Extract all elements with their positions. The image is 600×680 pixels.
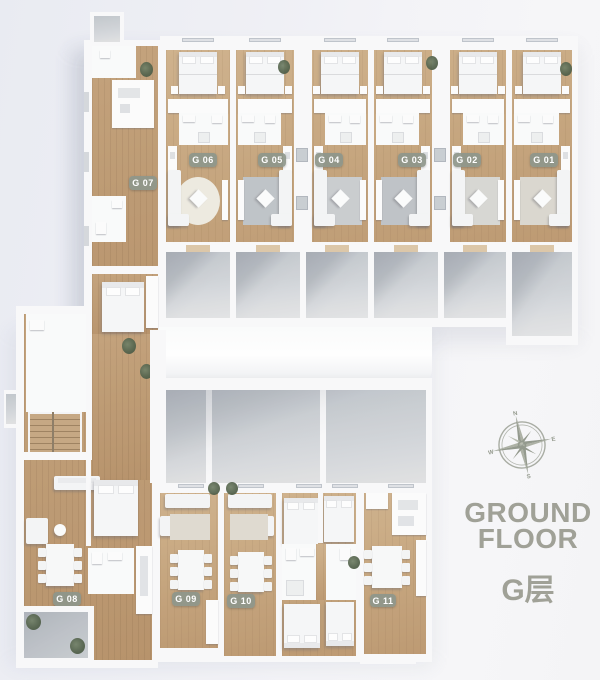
svg-text:N: N xyxy=(513,411,518,418)
svg-text:W: W xyxy=(488,450,495,457)
svg-text:E: E xyxy=(551,436,556,443)
svg-text:S: S xyxy=(526,474,531,479)
